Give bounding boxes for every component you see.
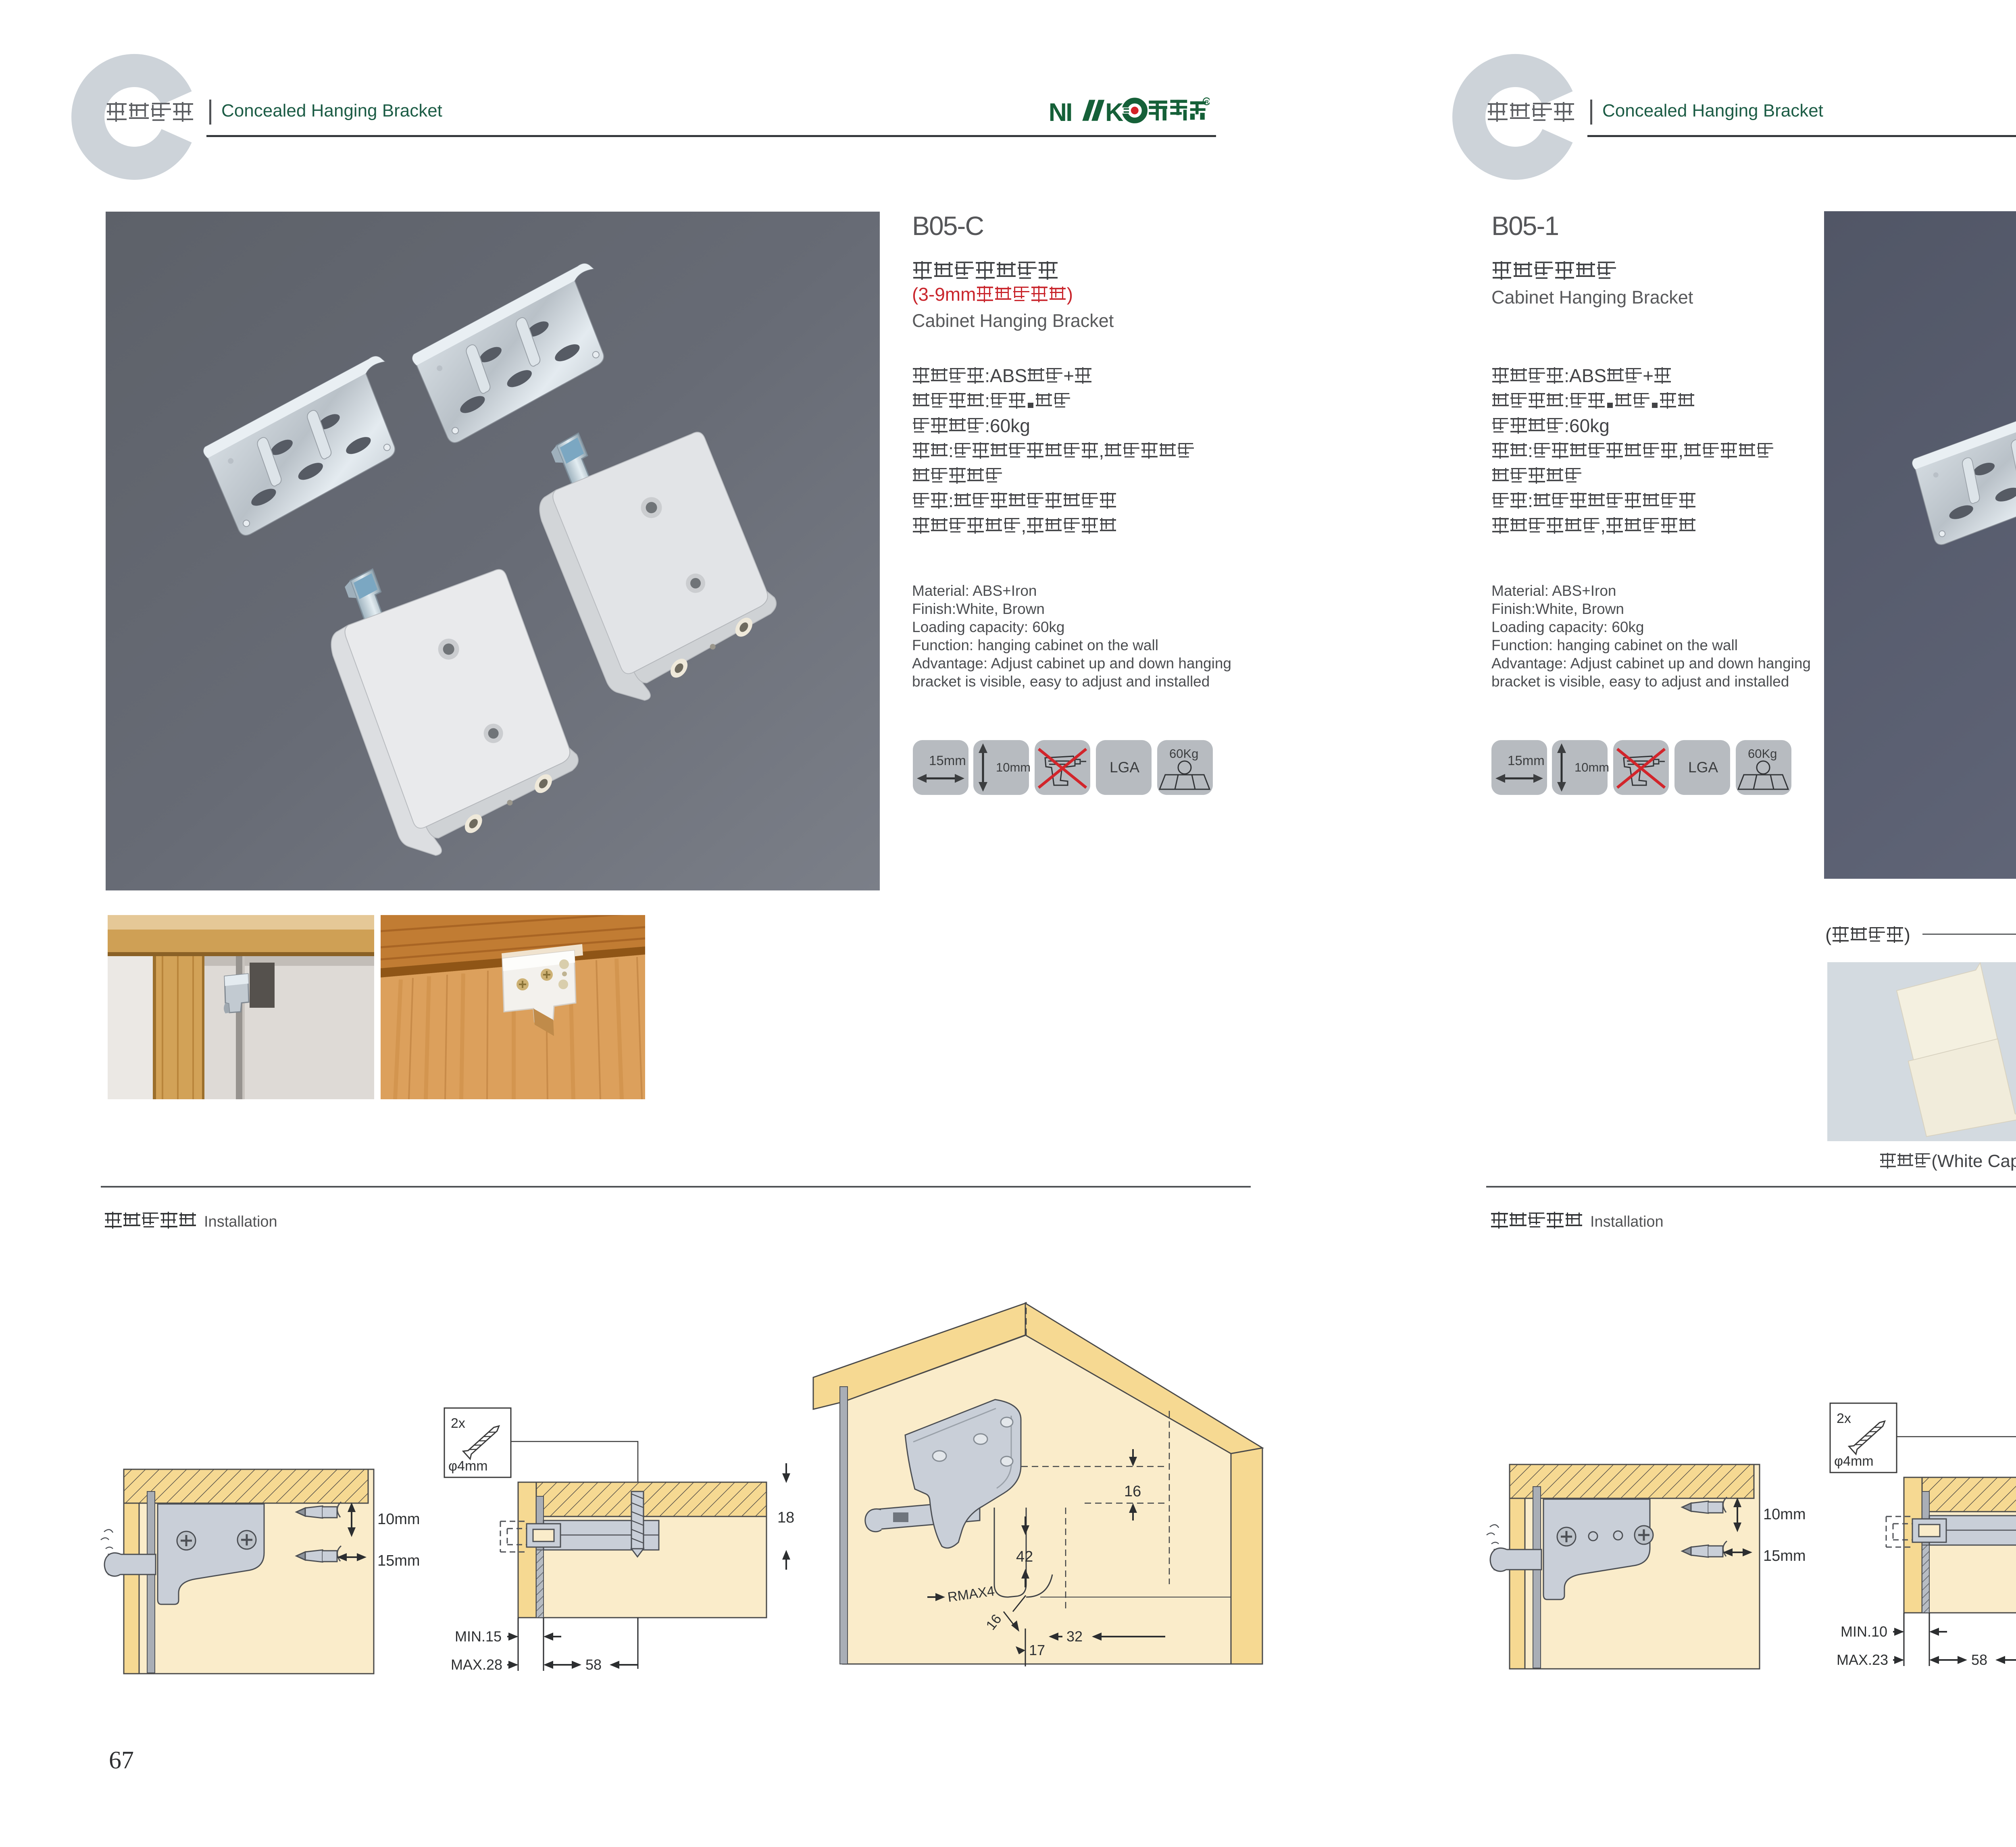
svg-text:15mm: 15mm — [1763, 1547, 1806, 1564]
svg-text:32: 32 — [1066, 1628, 1083, 1645]
svg-text:42: 42 — [1016, 1548, 1033, 1565]
svg-text:R: R — [1205, 99, 1209, 105]
svg-text:LGA: LGA — [1688, 759, 1718, 776]
svg-text:58: 58 — [585, 1656, 602, 1673]
svg-text:φ4mm: φ4mm — [1834, 1454, 1874, 1469]
svg-text:LGA: LGA — [1110, 759, 1139, 776]
svg-text:MIN.10: MIN.10 — [1841, 1623, 1887, 1640]
svg-text:10mm: 10mm — [1574, 760, 1609, 774]
svg-text:NI: NI — [1049, 98, 1072, 127]
svg-text:10mm: 10mm — [996, 760, 1031, 774]
svg-text:15mm: 15mm — [929, 753, 966, 768]
svg-text:2x: 2x — [451, 1416, 465, 1431]
svg-text:MAX.28: MAX.28 — [451, 1656, 502, 1673]
svg-text:15mm: 15mm — [1508, 753, 1545, 768]
svg-text:K: K — [1105, 98, 1123, 127]
svg-text:17: 17 — [1029, 1642, 1045, 1658]
svg-text:10mm: 10mm — [1763, 1506, 1806, 1523]
svg-text:60Kg: 60Kg — [1748, 747, 1777, 761]
svg-text:MIN.15: MIN.15 — [455, 1628, 502, 1645]
svg-text:16: 16 — [1124, 1483, 1141, 1500]
svg-text:18: 18 — [777, 1509, 794, 1526]
svg-text:60Kg: 60Kg — [1169, 747, 1198, 761]
svg-text:φ4mm: φ4mm — [448, 1458, 488, 1474]
svg-text:2x: 2x — [1837, 1411, 1851, 1426]
svg-text:10mm: 10mm — [377, 1511, 420, 1528]
svg-text:15mm: 15mm — [377, 1552, 420, 1569]
svg-text:58: 58 — [1971, 1651, 1987, 1668]
svg-text:MAX.23: MAX.23 — [1837, 1651, 1888, 1668]
